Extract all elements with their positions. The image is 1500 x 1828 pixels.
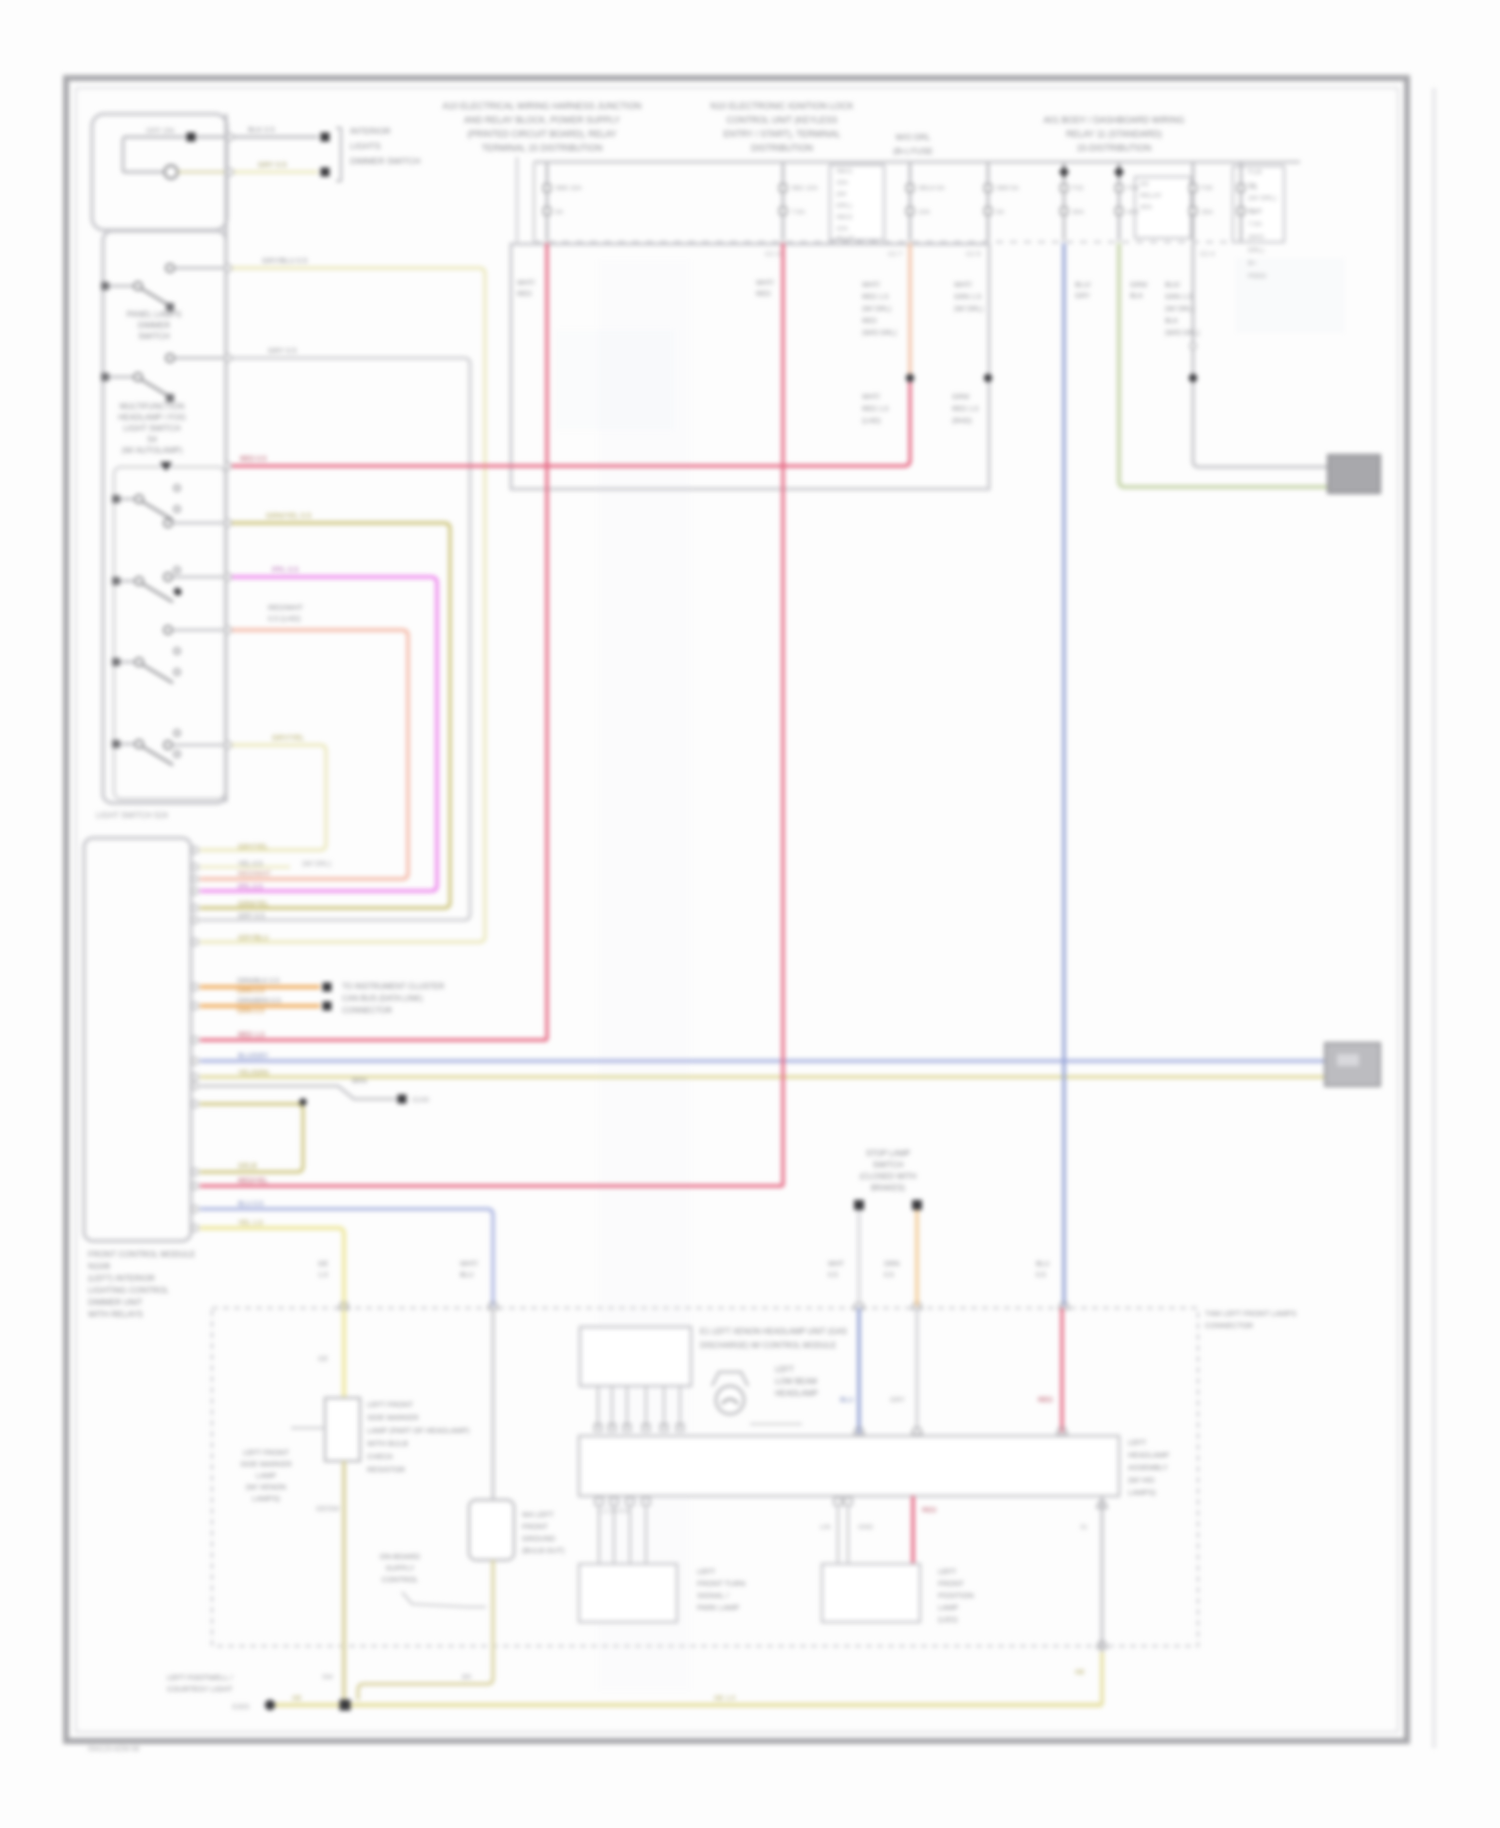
svg-text:BLU: BLU [840,1397,854,1404]
svg-text:SWITCH: SWITCH [873,1161,904,1170]
svg-text:YEL/GRN: YEL/GRN [238,1070,269,1077]
svg-text:LEFT FOOTWELL /: LEFT FOOTWELL / [167,1673,233,1682]
svg-text:ORN/BRN 0.5: ORN/BRN 0.5 [237,998,281,1005]
svg-text:A01 BODY / DASHBOARD WIRING: A01 BODY / DASHBOARD WIRING [1043,115,1184,125]
svg-text:RED 1.0: RED 1.0 [952,406,979,413]
svg-text:ORN/BLK 0.5: ORN/BLK 0.5 [237,978,280,985]
svg-text:CAN BUS (DATA LINK): CAN BUS (DATA LINK) [342,994,423,1003]
svg-text:LEFT: LEFT [938,1567,957,1576]
svg-text:SB6 15A: SB6 15A [555,185,582,192]
svg-text:GRN/: GRN/ [952,394,970,401]
svg-text:(W/ DRL): (W/ DRL) [862,306,891,313]
svg-text:WHT/: WHT/ [862,394,880,401]
svg-text:LAMPS): LAMPS) [1128,1488,1156,1497]
svg-text:10A: 10A [836,226,849,233]
svg-text:WHT/: WHT/ [862,282,880,289]
svg-text:HEADLAMP: HEADLAMP [775,1389,818,1398]
svg-text:LEFT: LEFT [1128,1438,1147,1447]
svg-text:DISTRIBUTION: DISTRIBUTION [751,143,813,153]
svg-text:(W/ DRL): (W/ DRL) [302,861,331,868]
svg-text:RED: RED [1038,1397,1053,1404]
svg-text:C2 7: C2 7 [888,251,903,258]
svg-text:C2 9: C2 9 [966,251,981,258]
svg-text:WHT/: WHT/ [756,280,774,287]
svg-text:(W/ HID: (W/ HID [1128,1476,1155,1485]
svg-text:WHT/: WHT/ [460,1261,478,1268]
svg-text:GRN 1.5: GRN 1.5 [1165,294,1192,301]
svg-text:B+: B+ [1248,260,1257,267]
svg-text:(W/ DRL): (W/ DRL) [954,306,983,313]
svg-text:(RHD): (RHD) [952,418,972,425]
svg-text:GRN 1.5: GRN 1.5 [954,294,981,301]
svg-text:RED: RED [756,291,771,298]
svg-text:GRY 0.5: GRY 0.5 [238,913,265,920]
svg-text:C2 27: C2 27 [765,251,783,258]
svg-text:LOW BEAM: LOW BEAM [775,1377,817,1386]
svg-text:LEFT: LEFT [697,1567,716,1576]
svg-text:ORN 0.5: ORN 0.5 [237,988,264,995]
svg-text:GRY: GRY [890,1397,905,1404]
svg-text:(LED): (LED) [938,1615,958,1624]
svg-text:W/O DRL: W/O DRL [895,133,930,142]
svg-text:GE 1.0: GE 1.0 [714,1695,735,1702]
svg-text:GRY: GRY [1075,293,1090,300]
svg-text:OFF ON: OFF ON [146,126,174,135]
svg-text:LAMPS): LAMPS) [252,1494,280,1503]
svg-text:0.5: 0.5 [884,1272,894,1279]
svg-text:GRY 0.5: GRY 0.5 [268,346,297,355]
svg-text:HEADLAMP: HEADLAMP [1128,1451,1169,1460]
svg-text:YEL 0.5: YEL 0.5 [238,861,263,868]
svg-text:STOP LAMP: STOP LAMP [866,1149,910,1158]
svg-text:BRN: BRN [352,1078,367,1085]
svg-text:LEFT: LEFT [775,1365,794,1374]
svg-text:LAMP (PART OF HEADLAMP): LAMP (PART OF HEADLAMP) [367,1426,470,1435]
svg-text:WHT: WHT [828,1261,845,1268]
svg-text:RED/YEL: RED/YEL [238,1178,268,1185]
svg-text:RED 0.5: RED 0.5 [240,456,267,463]
svg-text:SIDE MARKER: SIDE MARKER [367,1413,419,1422]
svg-text:GRY 0.5: GRY 0.5 [258,160,287,169]
svg-text:40A: 40A [1127,209,1140,216]
svg-text:(W/ DRL): (W/ DRL) [1248,195,1276,202]
svg-text:GE: GE [318,1356,328,1363]
svg-text:F34: F34 [1127,185,1139,192]
svg-text:DISCHARGE) W/ CONTROL MODULE: DISCHARGE) W/ CONTROL MODULE [700,1341,836,1350]
svg-text:(LEFT) INTERIOR: (LEFT) INTERIOR [88,1274,155,1283]
svg-text:RED 1.0: RED 1.0 [238,1032,265,1039]
svg-text:ORN 0.5: ORN 0.5 [237,1008,264,1015]
svg-text:W4 LEFT: W4 LEFT [522,1510,554,1519]
svg-text:S4: S4 [147,435,157,444]
svg-text:TO INSTRUMENT CLUSTER: TO INSTRUMENT CLUSTER [342,982,445,991]
svg-text:LIGHTING CONTROL: LIGHTING CONTROL [88,1286,169,1295]
svg-text:0.5 (LHD): 0.5 (LHD) [268,614,301,623]
svg-text:BR: BR [462,1674,472,1681]
svg-text:RED 1.5: RED 1.5 [862,294,889,301]
svg-text:7.5A: 7.5A [791,209,805,216]
svg-text:1 2 3 4 5 6: 1 2 3 4 5 6 [598,1508,629,1515]
svg-text:(LHD): (LHD) [862,418,881,425]
svg-text:ON-BOARD: ON-BOARD [380,1552,421,1561]
svg-text:15-DISTRIBUTION: 15-DISTRIBUTION [1077,143,1152,153]
svg-text:SB14 5A: SB14 5A [918,185,945,192]
svg-text:A10 ELECTRICAL WIRING HARNESS: A10 ELECTRICAL WIRING HARNESS JUNCTION [442,101,641,111]
svg-text:(W/ AUTOLAMP): (W/ AUTOLAMP) [122,446,183,455]
svg-text:TERMINAL 15 DISTRIBUTION: TERMINAL 15 DISTRIBUTION [482,143,603,153]
svg-text:15A: 15A [836,180,849,187]
svg-text:RED: RED [517,291,532,298]
svg-text:(CLOSED WITH: (CLOSED WITH [860,1172,917,1181]
svg-text:GELB: GELB [238,1163,257,1170]
svg-text:N10/8: N10/8 [88,1262,110,1271]
svg-text:SB21: SB21 [836,168,853,175]
svg-text:(B+) FUSE: (B+) FUSE [893,147,933,156]
svg-text:RELAY 11 (STANDARD): RELAY 11 (STANDARD) [1066,129,1162,139]
svg-text:WHT/: WHT/ [954,282,972,289]
svg-text:BLK/: BLK/ [1165,282,1180,289]
svg-text:BLU: BLU [460,1272,474,1279]
svg-text:G303: G303 [232,1704,249,1711]
svg-text:G240: G240 [412,1097,429,1104]
svg-text:BRAKES): BRAKES) [871,1184,906,1193]
svg-text:5A: 5A [996,209,1005,216]
svg-text:GRY/BLU: GRY/BLU [238,935,269,942]
svg-text:(BULB OUT): (BULB OUT) [522,1546,565,1555]
svg-text:POSITION: POSITION [938,1591,974,1600]
svg-text:5A: 5A [1249,209,1258,216]
svg-text:LAMP: LAMP [256,1471,276,1480]
svg-text:N10 ELECTRONIC IGNITION LOCK: N10 ELECTRONIC IGNITION LOCK [710,101,853,111]
svg-text:AND RELAY BLOCK, POWER SUPPLY: AND RELAY BLOCK, POWER SUPPLY [464,115,620,125]
svg-text:25A: 25A [1201,209,1214,216]
svg-text:LIN: LIN [820,1524,831,1531]
svg-text:7.5A: 7.5A [1248,221,1262,228]
svg-text:(W/: (W/ [836,191,847,198]
svg-text:YEL 1.0: YEL 1.0 [238,1220,263,1227]
svg-text:MULTIFUNCTION: MULTIFUNCTION [120,402,185,411]
svg-text:F30: F30 [1201,185,1213,192]
svg-text:10A: 10A [918,209,931,216]
svg-text:GRY/YEL: GRY/YEL [238,844,268,851]
svg-text:WITH RELAYS: WITH RELAYS [88,1310,143,1319]
svg-text:SB22: SB22 [836,214,853,221]
svg-text:GE: GE [292,1695,302,1702]
svg-text:SUPPLY: SUPPLY [385,1564,414,1573]
svg-text:BLU/GRY: BLU/GRY [238,1053,269,1060]
svg-text:RED/WHT: RED/WHT [238,871,271,878]
svg-text:F1/8: F1/8 [1248,169,1262,176]
svg-text:RED: RED [862,318,877,325]
svg-text:BLK: BLK [1165,318,1179,325]
svg-text:(W/ XENON: (W/ XENON [246,1483,286,1492]
svg-text:30A: 30A [1072,209,1085,216]
svg-text:DIMMER SWITCH: DIMMER SWITCH [350,156,420,166]
svg-text:CHECK: CHECK [367,1452,393,1461]
svg-text:C2 4: C2 4 [1200,251,1215,258]
svg-text:054123-AZW-08: 054123-AZW-08 [88,1746,139,1753]
svg-text:RED 1.0: RED 1.0 [862,406,889,413]
svg-text:SW: SW [322,1674,334,1681]
svg-text:RELAY: RELAY [1140,193,1162,200]
svg-text:LIGHTS: LIGHTS [350,141,381,151]
svg-text:GE: GE [318,1261,328,1268]
svg-text:LEFT FRONT: LEFT FRONT [367,1400,414,1409]
svg-text:WITH BULB: WITH BULB [367,1439,408,1448]
svg-text:FEED: FEED [1248,273,1266,280]
svg-text:BLU: BLU [1036,1261,1050,1268]
svg-text:CONNECTOR: CONNECTOR [1205,1321,1254,1330]
svg-text:A2 12: A2 12 [836,235,854,242]
svg-text:GRY/BLU 0.5: GRY/BLU 0.5 [262,256,307,265]
svg-text:WHT/: WHT/ [517,280,535,287]
svg-text:GRN/YEL: GRN/YEL [238,901,269,908]
svg-text:GRY/YEL: GRY/YEL [272,733,304,742]
svg-text:INTERIOR: INTERIOR [350,126,391,136]
svg-text:1.0: 1.0 [318,1272,328,1279]
svg-text:GE: GE [1075,1669,1085,1676]
svg-text:GRN/YEL 0.5: GRN/YEL 0.5 [266,511,311,520]
svg-text:ASSEMBLY: ASSEMBLY [1128,1463,1168,1472]
svg-text:K9: K9 [1140,181,1149,188]
svg-text:ENTRY / START), TERMINAL: ENTRY / START), TERMINAL [724,129,841,139]
svg-text:LIGHT SWITCH: LIGHT SWITCH [123,424,180,433]
svg-text:E1 LEFT XENON HEADLAMP UNIT (G: E1 LEFT XENON HEADLAMP UNIT (GAS [700,1327,847,1336]
svg-text:LAMP: LAMP [938,1603,958,1612]
svg-text:GND: GND [858,1524,873,1531]
svg-text:40A: 40A [1140,204,1153,211]
svg-text:CONTROL: CONTROL [382,1575,419,1584]
svg-text:BLU 0.5: BLU 0.5 [238,1201,263,1208]
svg-text:(W/ DRL): (W/ DRL) [1165,306,1194,313]
svg-text:SB9 5A: SB9 5A [996,185,1020,192]
svg-text:CONNECTOR: CONNECTOR [342,1006,392,1015]
svg-text:F5: F5 [1249,185,1257,192]
svg-text:HEADLAMP / FOG: HEADLAMP / FOG [118,413,186,422]
svg-text:PPL 0.5: PPL 0.5 [238,884,263,891]
svg-text:DRL): DRL) [836,203,852,210]
svg-text:0.5: 0.5 [1036,1272,1046,1279]
svg-text:GROUND: GROUND [522,1534,556,1543]
svg-text:CONTROL UNIT (KEYLESS: CONTROL UNIT (KEYLESS [727,115,838,125]
svg-text:FRONT CONTROL MODULE: FRONT CONTROL MODULE [88,1250,196,1259]
svg-text:BLU/: BLU/ [1075,282,1091,289]
svg-text:RED: RED [922,1507,936,1514]
svg-text:ORN: ORN [884,1261,900,1268]
svg-text:T4W LEFT FRONT LAMPS: T4W LEFT FRONT LAMPS [1205,1309,1296,1318]
svg-text:BLK 0.5: BLK 0.5 [248,125,275,134]
svg-text:PARK LAMP: PARK LAMP [697,1603,739,1612]
svg-text:LEFT FRONT: LEFT FRONT [243,1448,290,1457]
svg-text:SWITCH: SWITCH [138,332,170,341]
svg-text:FRONT: FRONT [522,1522,548,1531]
svg-text:RESISTOR: RESISTOR [367,1465,406,1474]
svg-text:5A: 5A [555,209,564,216]
svg-text:DIMMER UNIT: DIMMER UNIT [88,1298,143,1307]
svg-text:GRN/: GRN/ [1130,282,1148,289]
svg-text:SB2 10A: SB2 10A [791,185,818,192]
svg-text:GE/SW: GE/SW [316,1506,340,1513]
svg-text:(W/O DRL): (W/O DRL) [862,330,897,337]
svg-text:BLK: BLK [1130,293,1144,300]
svg-text:DRL): DRL) [1248,247,1264,254]
svg-text:RED/WHT: RED/WHT [268,603,303,612]
svg-text:(W/O DRL): (W/O DRL) [1165,330,1200,337]
svg-text:PPL 0.5: PPL 0.5 [272,565,298,574]
svg-text:FRONT TURN: FRONT TURN [697,1579,745,1588]
svg-text:COURTESY LIGHT: COURTESY LIGHT [167,1685,233,1694]
svg-text:F32: F32 [1072,185,1084,192]
svg-text:DIMMER: DIMMER [138,321,171,330]
svg-text:FRONT: FRONT [938,1579,964,1588]
svg-text:SIGNAL /: SIGNAL / [697,1591,729,1600]
svg-text:LIGHT SWITCH S24: LIGHT SWITCH S24 [96,811,168,820]
svg-text:31: 31 [1080,1524,1088,1531]
svg-text:(W/O: (W/O [1248,234,1264,241]
svg-text:(PRINTED CIRCUIT BOARD), RELAY: (PRINTED CIRCUIT BOARD), RELAY [467,129,616,139]
svg-text:SIDE MARKER: SIDE MARKER [240,1460,292,1469]
svg-text:PANEL LAMPS: PANEL LAMPS [127,310,182,319]
svg-text:0.5: 0.5 [828,1272,838,1279]
